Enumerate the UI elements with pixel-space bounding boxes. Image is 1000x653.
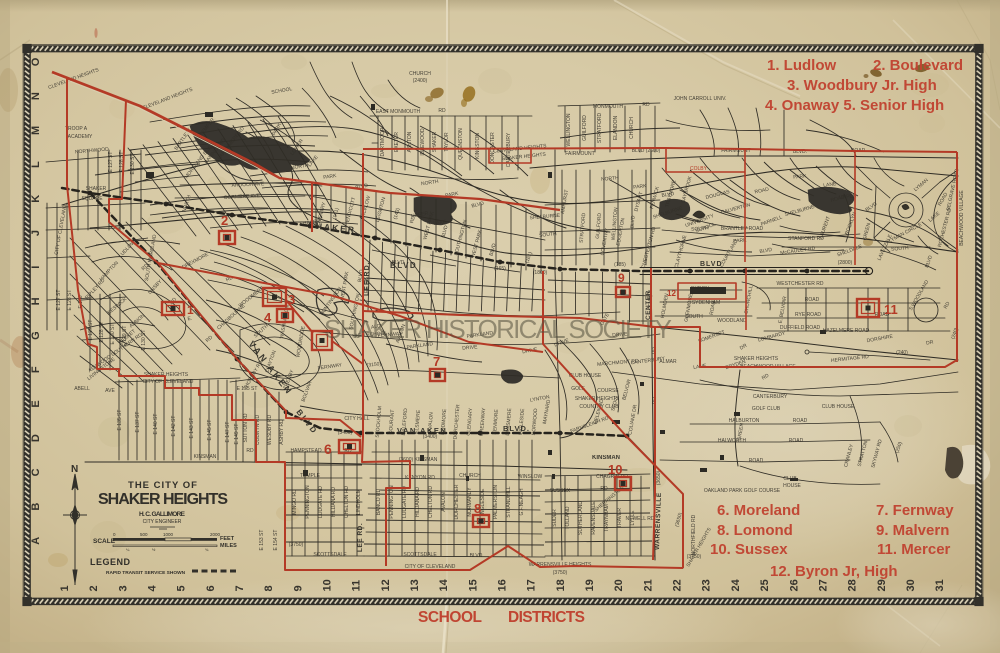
svg-text:ROAD: ROAD — [789, 438, 804, 444]
svg-text:LEGEND: LEGEND — [90, 557, 131, 567]
svg-text:C: C — [30, 468, 42, 476]
svg-text:NORMANDY: NORMANDY — [467, 487, 473, 517]
svg-text:15: 15 — [467, 579, 479, 591]
svg-text:6: 6 — [324, 441, 332, 457]
svg-text:(3150): (3150) — [366, 361, 381, 368]
svg-text:CITY HALL: CITY HALL — [344, 416, 369, 422]
svg-text:CHELTON RD: CHELTON RD — [428, 486, 434, 518]
svg-text:B: B — [30, 503, 42, 511]
svg-text:9: 9 — [292, 585, 304, 591]
svg-text:(3750): (3750) — [289, 542, 304, 548]
svg-text:19: 19 — [584, 579, 596, 591]
svg-text:(2800): (2800) — [838, 260, 853, 266]
svg-text:30: 30 — [905, 579, 917, 591]
svg-text:QUEENSTON: QUEENSTON — [458, 128, 464, 160]
svg-text:SUDER: SUDER — [552, 509, 558, 527]
svg-text:E 135 ST: E 135 ST — [237, 386, 258, 392]
svg-text:HAZELMERE ROAD: HAZELMERE ROAD — [823, 328, 870, 334]
svg-text:E 149 ST: E 149 ST — [234, 424, 240, 445]
svg-text:ABELL: ABELL — [74, 386, 90, 392]
svg-text:STANFORD RD: STANFORD RD — [788, 236, 824, 242]
svg-text:VAN AKEN: VAN AKEN — [397, 426, 447, 435]
svg-text:SUSSEX: SUSSEX — [550, 488, 571, 494]
svg-text:E 127 ST: E 127 ST — [108, 152, 114, 173]
svg-text:10. Sussex: 10. Sussex — [710, 541, 788, 558]
svg-text:TEMPLE: TEMPLE — [300, 473, 321, 479]
svg-text:I: I — [30, 266, 42, 269]
svg-text:E 127 ST: E 127 ST — [56, 290, 62, 311]
svg-text:10: 10 — [322, 579, 334, 591]
svg-text:E 154 ST: E 154 ST — [273, 530, 279, 551]
svg-text:2000: 2000 — [210, 532, 221, 537]
svg-text:7: 7 — [433, 354, 440, 369]
svg-text:E 140 ST: E 140 ST — [153, 414, 159, 435]
svg-text:RAPID TRANSIT SERVICE SHOWN: RAPID TRANSIT SERVICE SHOWN — [106, 570, 186, 576]
svg-text:THE CITY OF: THE CITY OF — [128, 480, 198, 491]
svg-text:SHAKER HEIGHTS: SHAKER HEIGHTS — [98, 491, 228, 508]
svg-text:24: 24 — [730, 578, 742, 591]
svg-text:3. Woodbury Jr. High: 3. Woodbury Jr. High — [787, 77, 937, 94]
svg-text:N: N — [30, 92, 42, 100]
svg-text:GUILFORD: GUILFORD — [582, 115, 588, 141]
svg-text:BANCO RD: BANCO RD — [376, 488, 382, 515]
svg-text:18: 18 — [555, 579, 567, 591]
svg-text:3: 3 — [288, 292, 295, 307]
svg-text:(240): (240) — [896, 350, 908, 356]
svg-text:CITY OF CLEVELAND: CITY OF CLEVELAND — [143, 379, 194, 385]
svg-text:M: M — [30, 126, 42, 135]
svg-text:BRANTLEY ROAD: BRANTLEY ROAD — [721, 226, 764, 232]
svg-text:HALBURTON: HALBURTON — [729, 418, 760, 424]
svg-text:CLUB HOUSE: CLUB HOUSE — [822, 404, 855, 410]
svg-text:22: 22 — [672, 579, 684, 591]
svg-text:9. Malvern: 9. Malvern — [876, 522, 949, 539]
svg-text:E 127 ST: E 127 ST — [88, 320, 94, 341]
svg-text:12: 12 — [667, 289, 676, 298]
svg-text:2: 2 — [88, 585, 100, 591]
svg-text:KINSMAN: KINSMAN — [592, 455, 620, 461]
svg-text:SCALE: SCALE — [93, 538, 116, 545]
svg-text:16: 16 — [497, 579, 509, 591]
svg-text:LEE RD.: LEE RD. — [357, 523, 364, 552]
svg-text:GOLF CLUB: GOLF CLUB — [752, 406, 781, 412]
svg-text:LINDHOLM: LINDHOLM — [356, 489, 362, 515]
svg-text:25: 25 — [759, 579, 771, 591]
svg-text:TRAVER: TRAVER — [617, 508, 623, 528]
svg-text:ROAD: ROAD — [805, 297, 820, 303]
svg-text:COURSE: COURSE — [597, 388, 619, 394]
svg-text:FAIRMOUNT: FAIRMOUNT — [565, 151, 594, 157]
svg-text:SHAKER: SHAKER — [86, 186, 107, 192]
svg-text:WESTCHESTER RD: WESTCHESTER RD — [777, 281, 824, 287]
svg-text:500: 500 — [140, 532, 148, 537]
svg-text:COLBY: COLBY — [690, 166, 708, 172]
svg-text:G: G — [30, 331, 42, 340]
svg-text:E 142 ST: E 142 ST — [171, 416, 177, 437]
svg-text:ROAD: ROAD — [749, 458, 764, 464]
svg-text:RD: RD — [438, 108, 446, 114]
svg-text:LEE RD.: LEE RD. — [364, 261, 371, 296]
svg-text:21: 21 — [642, 579, 654, 591]
svg-text:ACADEMY: ACADEMY — [68, 134, 93, 140]
svg-text:ROAD: ROAD — [793, 418, 808, 424]
svg-text:6: 6 — [205, 585, 217, 591]
svg-text:20: 20 — [613, 579, 625, 591]
svg-text:DORCHESTER: DORCHESTER — [454, 484, 460, 519]
svg-text:10: 10 — [608, 462, 622, 477]
svg-text:23: 23 — [701, 579, 713, 591]
svg-text:(3750): (3750) — [553, 570, 568, 576]
svg-text:(185): (185) — [614, 262, 626, 268]
svg-text:STRATFORD: STRATFORD — [597, 113, 603, 144]
svg-text:12: 12 — [380, 579, 392, 591]
svg-text:CLUB: CLUB — [783, 476, 797, 482]
svg-text:PENNINGTON: PENNINGTON — [389, 485, 395, 519]
svg-text:(2400): (2400) — [413, 78, 428, 84]
svg-text:LYTLE: LYTLE — [630, 510, 636, 526]
svg-text:HOUSE: HOUSE — [783, 483, 801, 489]
svg-text:MINGO RD: MINGO RD — [292, 489, 298, 515]
svg-text:HILDANA RD: HILDANA RD — [331, 487, 337, 517]
svg-text:BLVD.: BLVD. — [503, 424, 530, 433]
svg-text:WOODLAND: WOODLAND — [717, 318, 747, 324]
svg-text:11. Mercer: 11. Mercer — [877, 541, 951, 558]
svg-text:1: 1 — [187, 303, 194, 317]
svg-text:12. Byron Jr, High: 12. Byron Jr, High — [770, 563, 898, 580]
svg-text:2: 2 — [221, 213, 228, 228]
svg-text:SQUARE: SQUARE — [81, 196, 103, 202]
svg-text:4: 4 — [264, 310, 272, 325]
svg-text:BLVD: BLVD — [390, 261, 417, 270]
svg-text:TRAYNHAM: TRAYNHAM — [604, 504, 610, 532]
svg-text:H: H — [30, 297, 42, 305]
svg-text:BLVD: BLVD — [700, 261, 723, 268]
svg-text:DUFFIELD ROAD: DUFFIELD ROAD — [780, 325, 821, 331]
svg-text:MILES: MILES — [220, 543, 237, 549]
svg-text:PARK: PARK — [793, 173, 807, 180]
svg-text:1: 1 — [59, 585, 71, 591]
svg-text:7. Fernway: 7. Fernway — [876, 502, 954, 519]
svg-text:4: 4 — [147, 585, 159, 592]
svg-text:9: 9 — [618, 271, 625, 285]
svg-text:BEACHWOOD VILLAGE: BEACHWOOD VILLAGE — [959, 190, 965, 246]
svg-text:SCOTTSDALE: SCOTTSDALE — [403, 552, 437, 558]
svg-text:BLVD: BLVD — [470, 553, 483, 559]
svg-text:17: 17 — [526, 579, 538, 591]
svg-text:DISTRICTS: DISTRICTS — [508, 609, 585, 626]
svg-text:2. Boulevard: 2. Boulevard — [873, 57, 963, 74]
svg-text:D: D — [30, 434, 42, 442]
svg-text:SCOTTSDALE: SCOTTSDALE — [313, 552, 347, 558]
svg-text:6. Moreland: 6. Moreland — [717, 502, 800, 519]
svg-text:1000: 1000 — [163, 532, 174, 537]
svg-text:5: 5 — [176, 585, 188, 591]
svg-text:11: 11 — [884, 302, 898, 317]
svg-text:CHELTON RD: CHELTON RD — [344, 486, 350, 518]
svg-text:26: 26 — [788, 579, 800, 591]
svg-text:11: 11 — [351, 580, 363, 592]
svg-text:L: L — [30, 161, 42, 168]
svg-text:WINSLOW: WINSLOW — [518, 474, 543, 480]
svg-text:4. Onaway 5. Senior High: 4. Onaway 5. Senior High — [765, 97, 944, 114]
svg-text:SUTHERLAND: SUTHERLAND — [578, 501, 584, 535]
svg-text:29: 29 — [876, 579, 888, 591]
svg-text:1. Ludlow: 1. Ludlow — [767, 57, 836, 74]
svg-text:O: O — [30, 57, 42, 66]
svg-text:AVE: AVE — [105, 388, 115, 394]
svg-text:E 147 ST: E 147 ST — [225, 422, 231, 443]
svg-text:K: K — [30, 195, 42, 203]
svg-text:CANTERBURY: CANTERBURY — [753, 394, 788, 400]
svg-text:HAMPSTEAD: HAMPSTEAD — [290, 448, 322, 454]
svg-text:E 153 ST: E 153 ST — [259, 530, 265, 551]
svg-text:RD: RD — [642, 102, 650, 108]
svg-text:8. Lomond: 8. Lomond — [717, 522, 793, 539]
svg-text:CHURCH: CHURCH — [629, 117, 635, 139]
svg-text:KINSMAN: KINSMAN — [194, 454, 217, 460]
svg-text:E 137 ST: E 137 ST — [135, 412, 141, 433]
svg-text:SUTTON RD: SUTTON RD — [243, 413, 249, 442]
svg-text:31: 31 — [934, 579, 946, 591]
svg-text:7: 7 — [234, 585, 246, 591]
svg-text:E 128 ST: E 128 ST — [67, 290, 73, 311]
svg-text:CITY ENGINEER: CITY ENGINEER — [143, 519, 182, 525]
svg-text:OAKLAND PARK GOLF COURSE: OAKLAND PARK GOLF COURSE — [704, 488, 781, 494]
svg-text:ASHBY RD: ASHBY RD — [279, 419, 285, 445]
svg-text:E 130 ST: E 130 ST — [141, 330, 147, 351]
svg-text:JOHN CARROLL UNIV.: JOHN CARROLL UNIV. — [674, 96, 727, 102]
svg-text:HILDANA RD: HILDANA RD — [415, 487, 421, 517]
svg-text:RAVENSDALE: RAVENSDALE — [591, 501, 597, 535]
svg-text:F: F — [30, 366, 42, 373]
svg-text:TOLLAND: TOLLAND — [565, 506, 571, 529]
svg-text:E 143 ST: E 143 ST — [189, 418, 195, 439]
svg-text:E 130 ST: E 130 ST — [110, 324, 116, 345]
svg-text:LUDGATE RD: LUDGATE RD — [318, 486, 324, 518]
svg-text:(1800): (1800) — [533, 270, 548, 276]
svg-text:WESDBY RD: WESDBY RD — [267, 415, 273, 446]
svg-text:8: 8 — [263, 585, 275, 591]
svg-text:BLVD: BLVD — [629, 215, 636, 229]
svg-text:WELLINGTON: WELLINGTON — [566, 113, 572, 146]
svg-text:CANTERBURY: CANTERBURY — [506, 132, 512, 167]
svg-text:LUDGATE RD: LUDGATE RD — [402, 486, 408, 518]
svg-text:EAST MONMOUTH: EAST MONMOUTH — [376, 109, 421, 115]
svg-text:8: 8 — [474, 501, 481, 516]
svg-text:13: 13 — [409, 579, 421, 591]
svg-text:STRANDHILL: STRANDHILL — [506, 486, 512, 517]
svg-text:A: A — [30, 537, 42, 545]
svg-text:N: N — [71, 464, 78, 475]
svg-text:J: J — [30, 230, 42, 236]
svg-text:PALMERSTON: PALMERSTON — [493, 485, 499, 519]
svg-text:E: E — [30, 400, 42, 407]
svg-text:H. C. GALLIMORE: H. C. GALLIMORE — [139, 511, 186, 518]
svg-text:28: 28 — [847, 579, 859, 591]
svg-text:(3750): (3750) — [687, 554, 702, 560]
svg-text:(3400): (3400) — [338, 430, 353, 436]
svg-text:RYE ROAD: RYE ROAD — [795, 312, 821, 318]
svg-text:G.F.NEAGH: G.F.NEAGH — [519, 488, 525, 515]
svg-text:ELANDON: ELANDON — [613, 116, 619, 141]
svg-text:E 135 ST: E 135 ST — [117, 410, 123, 431]
svg-text:CHURCH: CHURCH — [409, 71, 431, 77]
svg-text:3: 3 — [117, 585, 129, 591]
svg-text:SHAKER HISTORICAL SOCIETY: SHAKER HISTORICAL SOCIETY — [324, 314, 672, 344]
svg-text:E 145 ST: E 145 ST — [207, 420, 213, 441]
svg-text:SCHOOL: SCHOOL — [418, 609, 482, 626]
svg-text:RD: RD — [246, 448, 254, 454]
svg-text:27: 27 — [817, 579, 829, 591]
svg-text:MONMOUTH: MONMOUTH — [593, 104, 623, 110]
svg-text:HALWORTH: HALWORTH — [718, 438, 747, 444]
svg-text:14: 14 — [438, 578, 450, 591]
svg-text:(165): (165) — [494, 266, 506, 272]
svg-text:TROOP A: TROOP A — [65, 126, 88, 132]
svg-text:FEET: FEET — [220, 536, 235, 542]
svg-text:E 130 ST: E 130 ST — [130, 154, 136, 175]
svg-text:CHURCH: CHURCH — [459, 473, 481, 479]
